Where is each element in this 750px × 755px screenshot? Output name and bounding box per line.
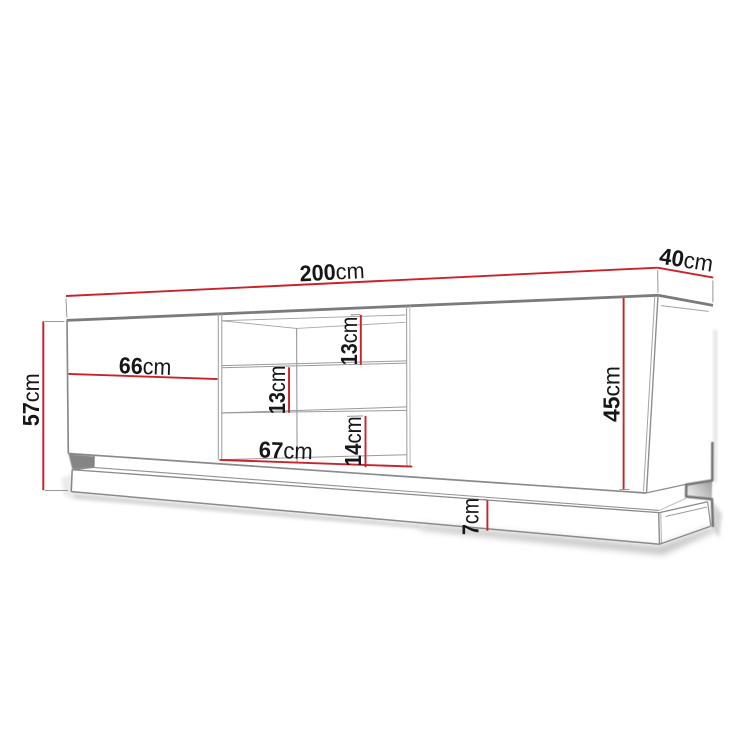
- svg-text:200cm: 200cm: [299, 258, 365, 286]
- svg-text:13cm: 13cm: [336, 317, 362, 366]
- svg-text:7cm: 7cm: [457, 498, 483, 535]
- svg-text:14cm: 14cm: [340, 416, 366, 466]
- svg-text:45cm: 45cm: [599, 366, 625, 422]
- svg-text:57cm: 57cm: [18, 373, 44, 426]
- svg-text:67cm: 67cm: [258, 436, 313, 464]
- svg-text:13cm: 13cm: [264, 366, 290, 415]
- svg-text:66cm: 66cm: [119, 352, 172, 380]
